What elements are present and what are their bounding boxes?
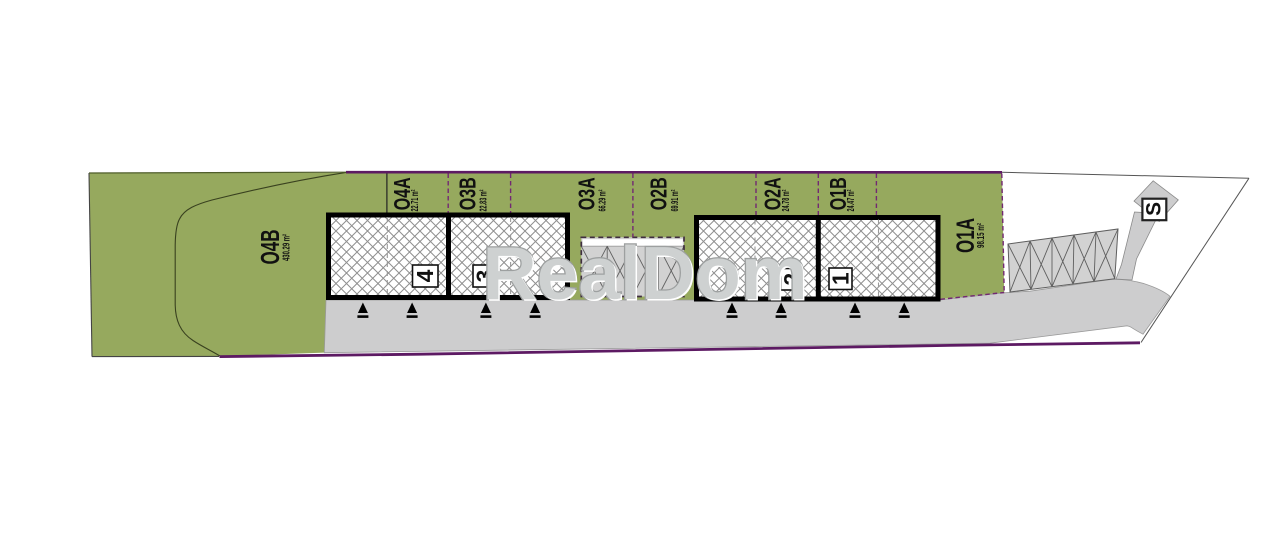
svg-text:24.47 m²: 24.47 m² [845,189,857,211]
svg-text:4: 4 [412,269,438,282]
svg-text:430.29 m²: 430.29 m² [281,234,293,261]
svg-text:22.71 m²: 22.71 m² [409,189,421,211]
svg-text:S: S [1143,202,1166,216]
svg-text:98.15 m²: 98.15 m² [975,223,987,248]
svg-text:O3A: O3A [573,177,599,210]
svg-text:O2B: O2B [646,177,672,210]
svg-text:RealDom: RealDom [482,231,807,315]
svg-text:66.29 m²: 66.29 m² [597,189,609,211]
svg-text:22.83 m²: 22.83 m² [478,189,490,211]
svg-text:1: 1 [828,272,854,285]
svg-text:24.78 m²: 24.78 m² [780,189,792,211]
svg-text:69.91 m²: 69.91 m² [669,189,681,211]
